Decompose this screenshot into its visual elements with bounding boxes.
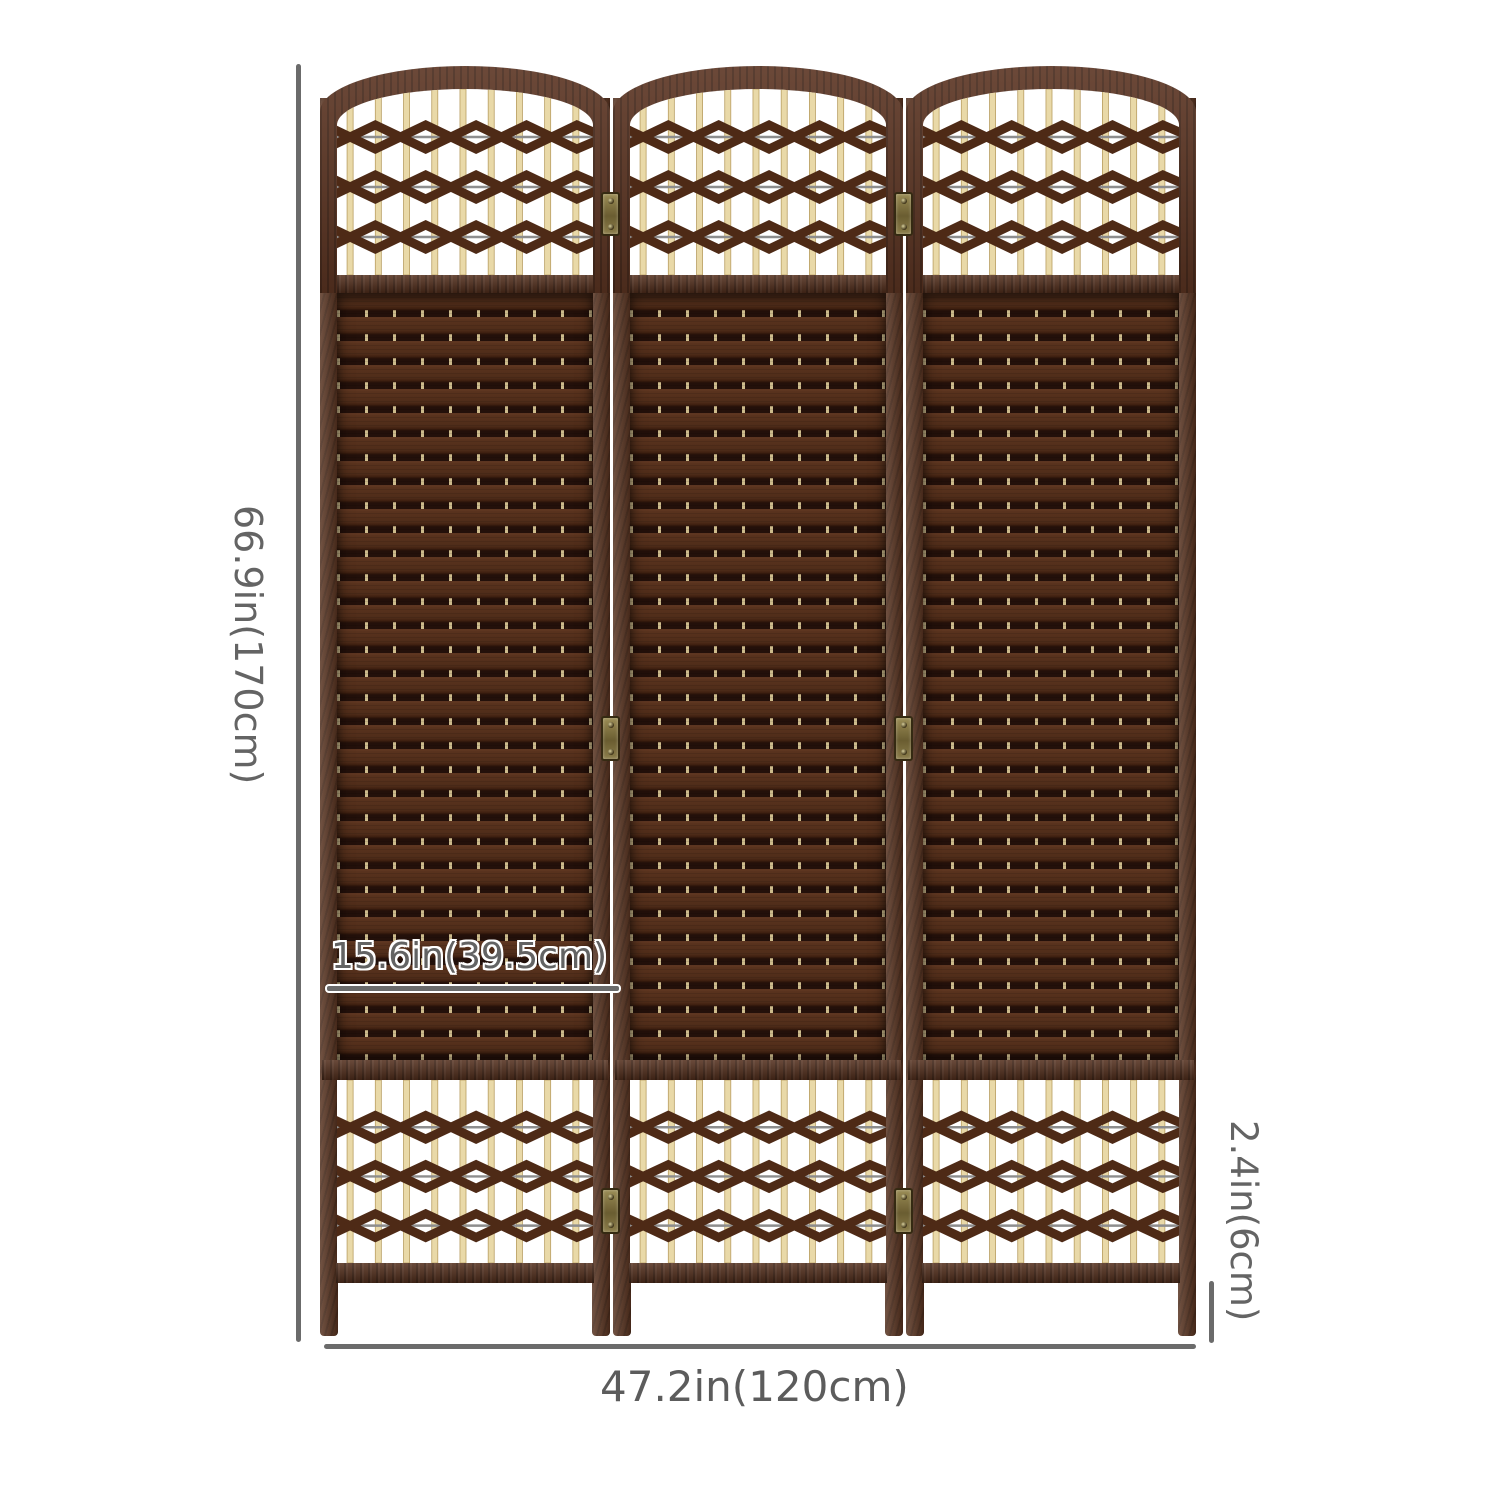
width-dimension-line: [324, 1344, 1196, 1349]
panel1-arch-top: [320, 66, 610, 293]
panel3-bottom-rail: [922, 1263, 1180, 1283]
panel1-bottom-rail: [336, 1263, 594, 1283]
panel-width-dimension-label: 15.6in(39.5cm): [331, 936, 607, 977]
panel2-mid-rail: [615, 1060, 901, 1080]
divider-panel-2: [613, 66, 903, 1336]
panel3-upper-rail: [923, 275, 1179, 293]
hinge-joint2-top: [894, 192, 913, 236]
product-dimension-diagram: 66.9in(170cm) 47.2in(120cm) 15.6in(39.5c…: [0, 0, 1500, 1500]
panel-width-dimension-line: [325, 984, 621, 993]
panel1-top-lattice-area: [337, 89, 593, 293]
panel2-top-lattice-weave: [630, 89, 886, 275]
panel1-upper-rail: [337, 275, 593, 293]
panel2-bottom-lattice-weave: [630, 1080, 886, 1263]
panel2-wicker-weave: [630, 293, 886, 1060]
panel1-bottom-lattice-weave: [337, 1080, 593, 1263]
hinge-joint2-middle: [894, 716, 913, 761]
divider-panel-1: [320, 66, 610, 1336]
panel2-top-lattice-area: [630, 89, 886, 293]
panel1-bottom-lattice-area: [337, 1080, 593, 1263]
hinge-joint2-bottom: [894, 1188, 913, 1234]
foot-height-dimension-line: [1209, 1281, 1214, 1343]
foot-height-dimension-label: 2.4in(6cm): [1222, 1120, 1265, 1321]
panel3-bottom-lattice-area: [923, 1080, 1179, 1263]
panel2-upper-rail: [630, 275, 886, 293]
divider-panel-3: [906, 66, 1196, 1336]
panel3-bottom-lattice-weave: [923, 1080, 1179, 1263]
panel1-top-lattice-weave: [337, 89, 593, 275]
panel3-wicker-weave: [923, 293, 1179, 1060]
panel3-mid-rail: [908, 1060, 1194, 1080]
panel2-arch-top: [613, 66, 903, 293]
hinge-joint1-middle: [601, 716, 620, 761]
hinge-joint1-bottom: [601, 1188, 620, 1234]
hinge-joint1-top: [601, 192, 620, 236]
height-dimension-line: [296, 64, 301, 1342]
width-dimension-label: 47.2in(120cm): [600, 1362, 909, 1411]
panel1-mid-rail: [322, 1060, 608, 1080]
panel2-bottom-rail: [629, 1263, 887, 1283]
panel3-top-lattice-weave: [923, 89, 1179, 275]
height-dimension-label: 66.9in(170cm): [226, 505, 270, 784]
panel3-arch-top: [906, 66, 1196, 293]
panel2-bottom-lattice-area: [630, 1080, 886, 1263]
panel3-top-lattice-area: [923, 89, 1179, 293]
